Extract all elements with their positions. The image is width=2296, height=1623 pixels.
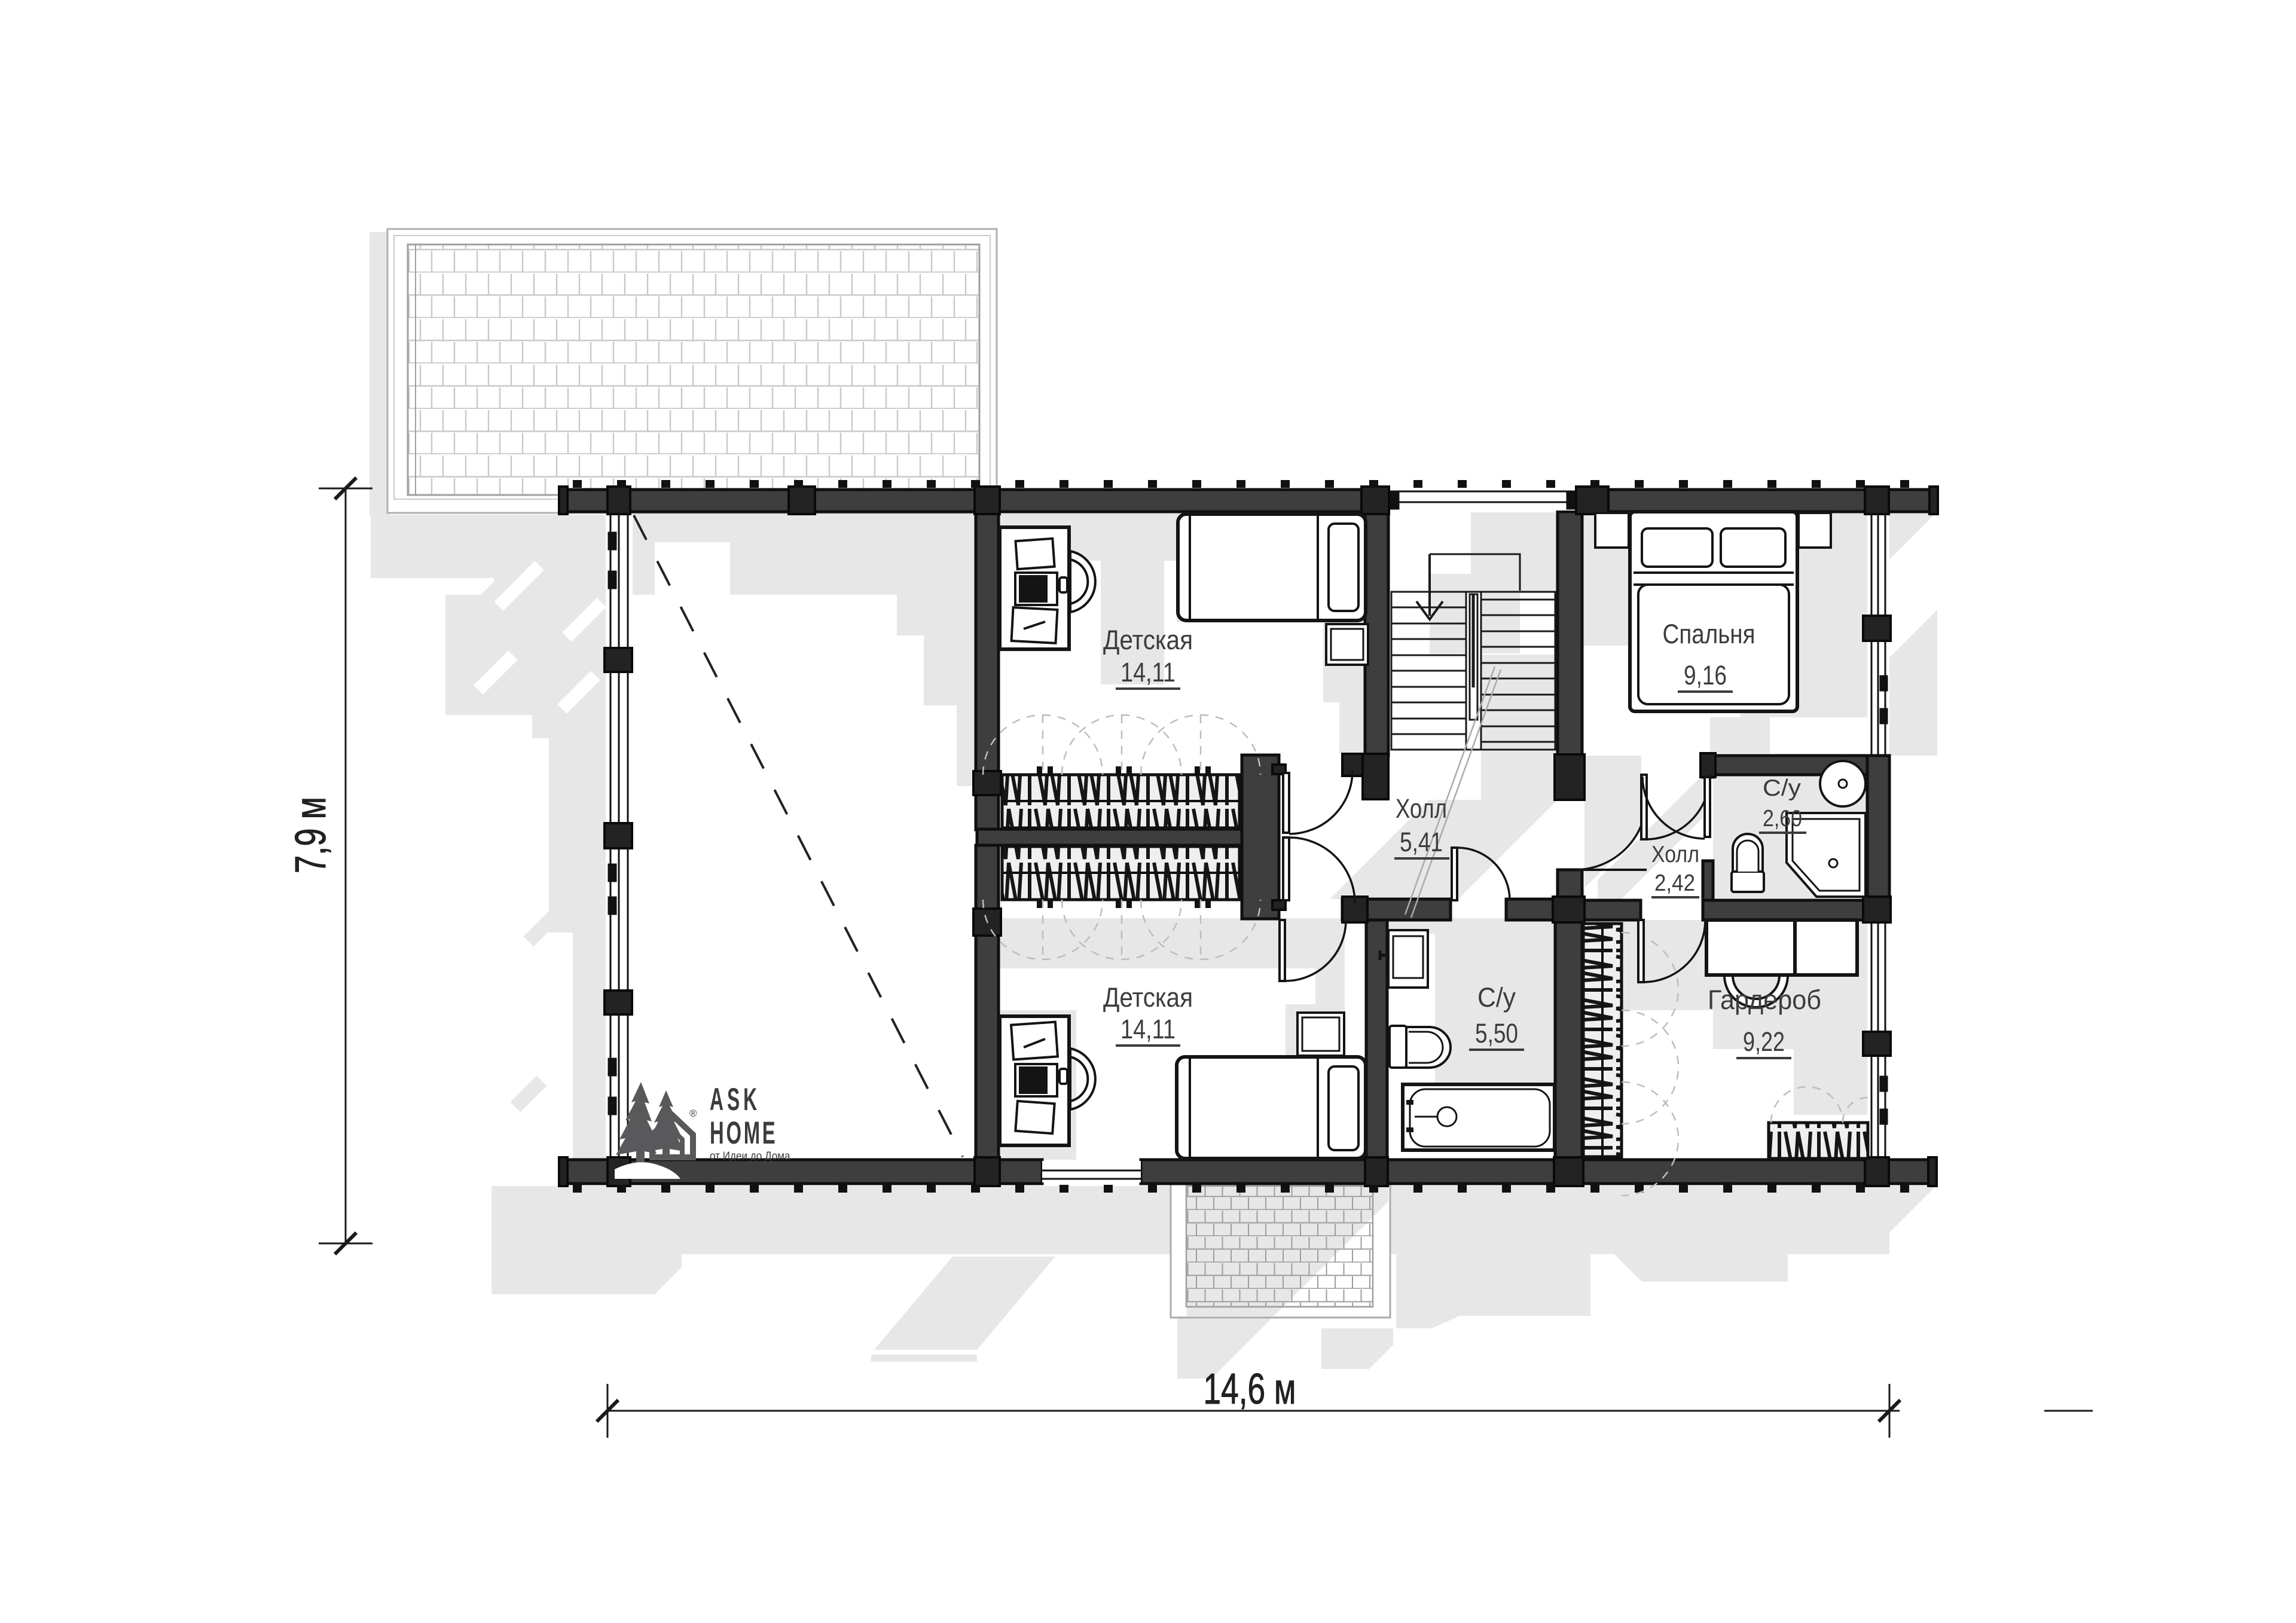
- svg-text:Гардероб: Гардероб: [1708, 985, 1821, 1015]
- svg-text:от Идеи до Дома: от Идеи до Дома: [710, 1150, 790, 1162]
- svg-text:14,6 м: 14,6 м: [1204, 1365, 1296, 1413]
- svg-text:9,22: 9,22: [1743, 1026, 1785, 1057]
- svg-text:®: ®: [689, 1108, 697, 1119]
- svg-text:Спальня: Спальня: [1663, 619, 1755, 649]
- svg-text:5,50: 5,50: [1475, 1018, 1518, 1049]
- svg-text:2,42: 2,42: [1654, 870, 1695, 896]
- svg-text:С/у: С/у: [1763, 775, 1802, 801]
- svg-text:ASK: ASK: [710, 1082, 761, 1117]
- svg-text:Холл: Холл: [1396, 793, 1447, 824]
- svg-text:7,9 м: 7,9 м: [287, 797, 335, 873]
- svg-text:9,16: 9,16: [1684, 660, 1727, 690]
- svg-text:Детская: Детская: [1103, 982, 1193, 1013]
- svg-text:С/у: С/у: [1477, 982, 1516, 1013]
- svg-text:5,41: 5,41: [1400, 827, 1443, 857]
- svg-text:14,11: 14,11: [1120, 1014, 1176, 1044]
- svg-text:Детская: Детская: [1103, 625, 1193, 655]
- svg-text:Холл: Холл: [1651, 842, 1699, 867]
- svg-text:HOME: HOME: [710, 1115, 777, 1151]
- svg-text:2,60: 2,60: [1763, 806, 1802, 832]
- svg-text:14,11: 14,11: [1120, 657, 1176, 687]
